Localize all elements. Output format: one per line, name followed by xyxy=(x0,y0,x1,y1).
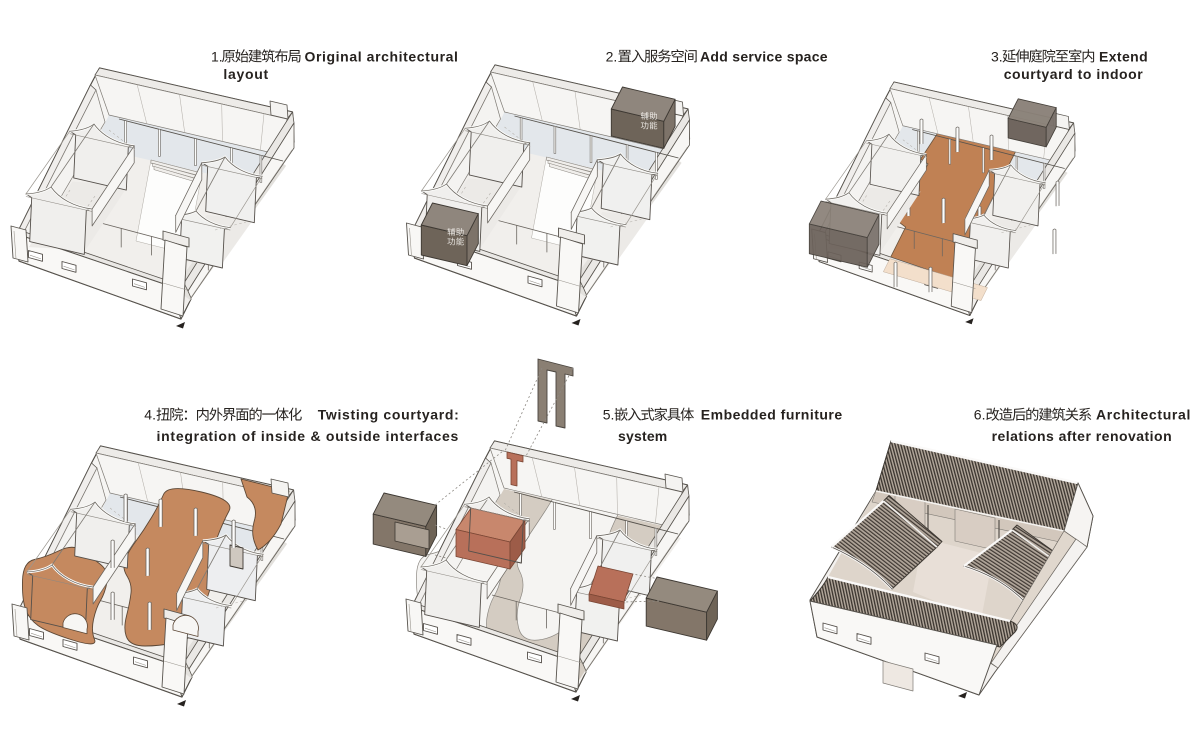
svg-text:integration of inside & outsid: integration of inside & outside interfac… xyxy=(157,428,460,444)
svg-text:Extend: Extend xyxy=(1099,48,1148,64)
svg-text:Twisting courtyard:: Twisting courtyard: xyxy=(318,407,460,423)
svg-text:layout: layout xyxy=(223,66,268,82)
svg-text:3.: 3. xyxy=(991,48,1003,64)
svg-text:courtyard to indoor: courtyard to indoor xyxy=(1004,66,1144,82)
svg-text:6.: 6. xyxy=(974,407,986,423)
svg-text:Embedded furniture: Embedded furniture xyxy=(701,407,843,423)
svg-text:relations after renovation: relations after renovation xyxy=(992,428,1173,444)
svg-text:Add service space: Add service space xyxy=(700,48,828,64)
svg-text:system: system xyxy=(618,428,667,444)
svg-text:1.: 1. xyxy=(211,48,223,64)
svg-text:Original architectural: Original architectural xyxy=(305,48,459,64)
svg-text:2.: 2. xyxy=(606,48,618,64)
svg-text:4.: 4. xyxy=(144,407,156,423)
svg-text:Architectural: Architectural xyxy=(1096,407,1191,423)
svg-text:5.: 5. xyxy=(603,407,615,423)
